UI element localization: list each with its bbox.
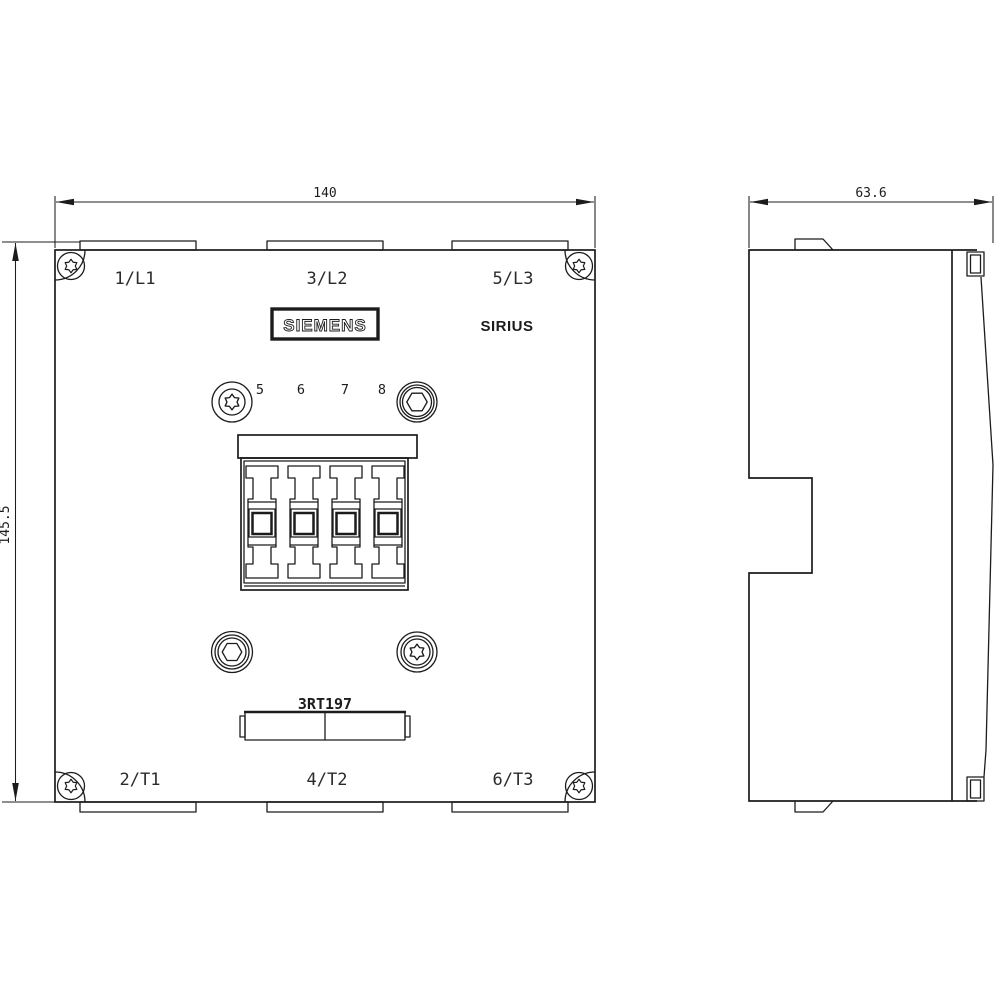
brand-text: SIEMENS <box>283 316 367 335</box>
torx-icon <box>410 644 424 660</box>
clip-inner <box>971 780 981 798</box>
corner-screw-bottom-left <box>55 772 85 802</box>
aux-number-8: 8 <box>378 382 386 398</box>
arrowhead-bottom <box>12 783 19 801</box>
aux-screw-right <box>397 382 437 422</box>
dimension-side-depth: 63.6 <box>749 186 993 248</box>
top-tab-3 <box>452 241 568 250</box>
series-text: SIRIUS <box>480 318 533 335</box>
terminal-clamp-1 <box>246 466 278 578</box>
clamp-outline <box>372 466 404 578</box>
aux-screw-left <box>212 382 252 422</box>
top-clip <box>967 252 984 276</box>
bottom-tab-2 <box>267 802 383 812</box>
terminal-block-header <box>238 435 417 458</box>
terminal-label-4T2: 4/T2 <box>307 770 348 790</box>
terminal-block <box>238 435 417 590</box>
label-plate <box>240 712 410 740</box>
top-tab-1 <box>80 241 196 250</box>
arrowhead-left <box>56 199 74 205</box>
side-body-outline <box>749 250 977 801</box>
top-rib <box>795 239 833 250</box>
lower-screw-left <box>212 632 253 673</box>
side-depth-value: 63.6 <box>855 186 886 201</box>
torx-icon <box>573 259 585 273</box>
plate-right-tab <box>405 716 410 737</box>
screw-head <box>397 632 437 672</box>
front-height-value: 145.5 <box>0 505 13 544</box>
screw-head <box>212 382 252 422</box>
aux-number-5: 5 <box>256 382 264 398</box>
wire-cavity-inner <box>253 513 272 534</box>
terminal-label-2T1: 2/T1 <box>120 770 161 790</box>
wire-cavity-inner <box>337 513 356 534</box>
dimension-front-height: 145.5 <box>0 242 80 802</box>
lower-screw-right <box>397 632 437 672</box>
bottom-clip <box>967 777 984 801</box>
hex-socket-icon <box>222 644 242 661</box>
torx-icon <box>573 779 585 793</box>
screw-head-mid <box>400 385 434 419</box>
terminal-label-5L3: 5/L3 <box>493 269 534 289</box>
clamp-outline <box>330 466 362 578</box>
front-width-value: 140 <box>313 186 336 201</box>
side-view <box>749 239 993 812</box>
terminal-label-1L1: 1/L1 <box>115 269 156 289</box>
bottom-rib <box>795 801 833 812</box>
arrowhead-left <box>750 199 768 205</box>
wire-cavity-inner <box>379 513 398 534</box>
hex-socket-icon <box>407 393 427 411</box>
siemens-logo: SIEMENS <box>272 309 378 339</box>
wire-cavity-inner <box>295 513 314 534</box>
corner-screw-top-right <box>565 250 595 280</box>
model-text: 3RT197 <box>298 695 352 713</box>
aux-number-7: 7 <box>341 382 349 398</box>
torx-icon <box>65 779 77 793</box>
screw-head-inner <box>219 389 245 415</box>
screw-head-mid <box>401 636 433 668</box>
arrowhead-right <box>974 199 992 205</box>
terminal-clamp-3 <box>330 466 362 578</box>
clamp-outline <box>246 466 278 578</box>
drawing-canvas: 140 145.5 63.6 <box>0 0 1000 1000</box>
terminal-clamp-4 <box>372 466 404 578</box>
bottom-tab-1 <box>80 802 196 812</box>
torx-icon <box>225 394 239 410</box>
screw-head-mid <box>215 635 249 669</box>
cover-profile-edge <box>981 277 993 777</box>
front-view: 1/L1 3/L2 5/L3 SIEMENS SIRIUS 5 6 7 8 <box>55 241 595 812</box>
bottom-tab-3 <box>452 802 568 812</box>
technical-drawing: 140 145.5 63.6 <box>0 0 1000 1000</box>
screw-head-inner <box>404 639 430 665</box>
terminal-label-6T3: 6/T3 <box>493 770 534 790</box>
terminal-block-inner <box>244 461 405 583</box>
clip-inner <box>971 255 981 273</box>
clamp-outline <box>288 466 320 578</box>
dimension-front-width: 140 <box>55 186 595 248</box>
terminal-clamp-2 <box>288 466 320 578</box>
corner-screw-top-left <box>55 250 85 280</box>
top-tab-2 <box>267 241 383 250</box>
aux-number-6: 6 <box>297 382 305 398</box>
arrowhead-top <box>12 243 19 261</box>
torx-icon <box>65 259 77 273</box>
terminal-label-3L2: 3/L2 <box>307 269 348 289</box>
terminal-block-body <box>241 458 408 590</box>
plate-left-tab <box>240 716 245 737</box>
arrowhead-right <box>576 199 594 205</box>
corner-screw-bottom-right <box>565 772 595 802</box>
